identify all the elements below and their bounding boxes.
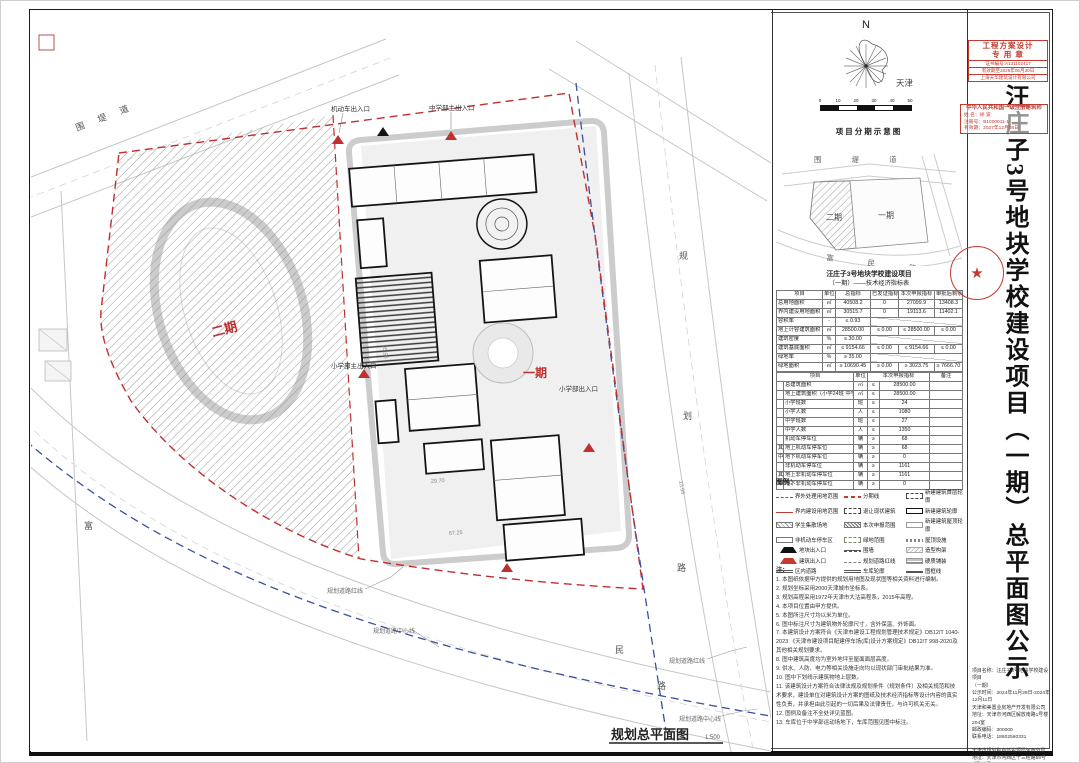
indicator2-cell: 27	[880, 417, 930, 426]
indicator2-row: 中学人数人≤1350	[777, 426, 963, 435]
legend-symbol-s-bold-box	[906, 508, 923, 514]
indicator2-cell: 中学人数	[784, 426, 854, 435]
scale-bar-cell	[857, 106, 875, 110]
road-label-guihua-2: 划	[683, 410, 692, 421]
dim-text-4: 35.50	[381, 345, 388, 359]
indicator-cell: 0	[871, 308, 899, 317]
indicator-section: 汪庄子3号地块学校建设项目 （一期）——技术经济指标表 项目单位总指标已发证指标…	[776, 270, 962, 490]
indicator2-cell: ㎡	[854, 390, 868, 399]
indicator2-header-cell: 单位	[854, 372, 868, 381]
scale-tick: 0	[819, 98, 822, 103]
indicator-cell: ≥ 3023.75	[899, 362, 935, 371]
info-line: 公示时间：2024年11月28日-2024年12月11日	[972, 690, 1052, 705]
city-label: 天津	[896, 78, 914, 88]
indicator2-cell	[930, 390, 963, 399]
indicator-cell: 总用地面积	[777, 299, 823, 308]
architect-stamp: 中华人民共和国一级注册建筑师 姓 名：徐 波 注册号：B1000011-1 有效…	[960, 104, 1048, 134]
indicator-header-cell: 已发证指标	[871, 290, 899, 299]
indicator2-header-cell: 备注	[930, 372, 963, 381]
indicator2-cell: 辆	[854, 453, 868, 462]
indicator2-cell: 中	[777, 453, 784, 462]
note-item: 9. 供水、人防、电力等相关设施走向均以现状部门审批结果为准。	[776, 665, 960, 674]
indicator2-cell: 68	[880, 435, 930, 444]
info-line: 地址：天津市河西区解放南路1号楼204室	[972, 712, 1052, 727]
legend-label: 新建建筑屋顶轮廓	[925, 517, 966, 533]
note-item: 3. 规划高程采用1972年天津市大沽高程系，2015年高程。	[776, 594, 960, 603]
dim-text-2: 67.25	[449, 530, 463, 537]
sheet-page: 机动车出入口 中学部主出入口 小学部主出入口 小学部出入口 29.70 67.2…	[0, 0, 1080, 763]
project-info-block: 项目名称：汪庄子3号地块学校建设项目（一期）公示时间：2024年11月28日-2…	[972, 668, 1052, 763]
note-item: 6. 图中标注尺寸为建筑物外轮廓尺寸，含外保温、外饰面。	[776, 621, 960, 630]
indicator2-cell: 人	[854, 426, 868, 435]
legend-label: 屋顶设施	[925, 536, 947, 544]
indicator2-cell: 68	[880, 444, 930, 453]
legend-item: 造型构架	[906, 546, 966, 554]
indicator2-cell: ≤	[868, 390, 880, 399]
indicator-cell: ㎡	[823, 362, 836, 371]
scale-bar-cell	[875, 106, 893, 110]
indicator-cell: 0	[871, 299, 899, 308]
indicator-cell: %	[823, 353, 836, 362]
indicator2-cell: 28500.00	[880, 390, 930, 399]
indicator2-cell	[930, 435, 963, 444]
indicator2-cell	[930, 381, 963, 390]
table-title: 汪庄子3号地块学校建设项目	[776, 270, 962, 280]
indicator2-row: 小学班数班≤24	[777, 399, 963, 408]
corner-mark	[39, 35, 54, 50]
legend-label: 分期线	[863, 492, 879, 500]
indicator2-cell: 中学班数	[784, 417, 854, 426]
indicator-cell: ≤ 0.00	[935, 344, 963, 353]
indicator-merged-cell	[871, 317, 963, 326]
indicator-cell: ㎡	[823, 308, 836, 317]
legend-symbol-s-dots	[906, 539, 923, 542]
indicator2-cell: 地上机动车停车位	[784, 444, 854, 453]
legend-symbol-s-box	[776, 537, 793, 543]
indicator2-cell: ≤	[868, 426, 880, 435]
indicator-cell: 13408.3	[935, 299, 963, 308]
note-item: 10. 图中下划线示建筑物地上层数。	[776, 674, 960, 683]
legend-item: 新建建筑屋顶轮廓	[906, 517, 966, 533]
building-gym-hall	[356, 273, 439, 367]
indicator-row: 总用地面积㎡40508.2027099.913408.3	[777, 299, 963, 308]
indicator2-cell: 小学人数	[784, 408, 854, 417]
indicator2-cell: ≥	[868, 462, 880, 471]
indicator2-cell: 班	[854, 399, 868, 408]
indicator-header-cell: 总指标	[836, 290, 871, 299]
indicator-cell: 11402.1	[935, 308, 963, 317]
legend-label: 退让现状建筑	[863, 507, 895, 515]
indicator2-header-cell: 本次申报指标	[868, 372, 930, 381]
note-item: 7. 本建筑设计方案符合《天津市建设工程规划管理技术规定》DB12/T 1040…	[776, 629, 960, 656]
legend-symbol-s-tri-r	[780, 558, 797, 564]
legend-symbol-s-red-dash	[776, 497, 793, 498]
indicator-cell: 界内建设用地面积	[777, 308, 823, 317]
indicator-row: 绿地面积㎡≥ 10690.45≥ 0.00≥ 3023.75≥ 7666.70	[777, 362, 963, 371]
phasing-road-top: 围 堤 道	[814, 154, 911, 164]
indicator-cell: ≤ 0.00	[871, 344, 899, 353]
table-subtitle: （一期）——技术经济指标表	[776, 280, 962, 289]
legend-label: 围墙	[863, 546, 874, 554]
indicator-cell: 地上计容建筑面积	[777, 326, 823, 335]
indicator2-cell	[930, 462, 963, 471]
indicator-cell: 建筑密度	[777, 335, 823, 344]
indicator-merged-cell	[871, 335, 963, 344]
indicator2-cell	[930, 444, 963, 453]
note-item: 8. 图中建筑高度均为室外地坪至屋面面层高度。	[776, 656, 960, 665]
indicator-cell: 建筑基底面积	[777, 344, 823, 353]
indicator-cell: ≥ 0.00	[871, 362, 899, 371]
legend-item: 新建建筑首层轮廓	[906, 488, 966, 504]
scale-bar-cell	[821, 106, 839, 110]
legend-symbol-s-red-seg	[844, 496, 861, 499]
notes-list: 1. 本图纸依据甲方提供的规划用地图及现状图等相关资料进行编制。2. 规划坐标采…	[776, 576, 960, 727]
indicator-row: 地上计容建筑面积㎡28500.00≤ 0.00≤ 28500.00≤ 0.00	[777, 326, 963, 335]
legend-label: 界内建设用地范围	[795, 507, 838, 515]
site-plan: 机动车出入口 中学部主出入口 小学部主出入口 小学部出入口 29.70 67.2…	[31, 11, 771, 752]
company-round-stamp: ★	[950, 246, 1004, 300]
indicator2-cell: 其	[777, 444, 784, 453]
north-label: N	[862, 19, 870, 31]
legend-label: 非机动车停车区	[795, 536, 833, 544]
road-label-fumin-3: 路	[657, 680, 666, 691]
note-item: 1. 本图纸依据甲方提供的规划用地图及现状图等相关资料进行编制。	[776, 576, 960, 585]
indicator2-cell: ≥	[868, 444, 880, 453]
stamp-star-icon: ★	[970, 266, 983, 281]
legend-item: 围墙	[844, 546, 904, 554]
indicator2-cell	[930, 417, 963, 426]
dim-text-1: 29.70	[431, 478, 445, 485]
indicator-header-cell: 本次申报指标	[899, 290, 935, 299]
indicator2-cell	[777, 435, 784, 444]
scale-bar-cell	[839, 106, 857, 110]
scale-bar-cell	[893, 106, 911, 110]
indicator2-cell: 人	[854, 408, 868, 417]
scale-tick: 10	[835, 98, 840, 103]
indicator2-cell	[777, 399, 784, 408]
legend-item: 非机动车停车区	[776, 536, 842, 544]
legend-item: 硬质铺装	[906, 557, 966, 565]
indicator2-cell: 机动车停车位	[784, 435, 854, 444]
architect-stamp-line2: 姓 名：徐 波	[961, 113, 1047, 120]
phasing-diagram: 二期 一期 围 堤 道 富 民 路	[774, 138, 964, 266]
building-south-wing	[503, 519, 584, 561]
indicator-cell: ≤ 0.93	[836, 317, 871, 326]
design-stamp-line1: 工程方案设计	[969, 41, 1047, 50]
indicator2-cell: 0	[880, 453, 930, 462]
building-small-mid	[375, 400, 398, 443]
legend-symbol-s-tri-k	[780, 547, 797, 553]
scale-tick: 50	[907, 98, 912, 103]
indicator-cell: -	[823, 317, 836, 326]
indicator2-cell: 小学班数	[784, 399, 854, 408]
info-line: 地址：天津市河西区十三经路59号	[972, 755, 1052, 762]
indicator2-row: 总建筑面积㎡≤28500.00	[777, 381, 963, 390]
scale-bar-cells	[820, 105, 912, 111]
scale-bar: 01020304050	[820, 98, 930, 110]
legend-symbol-s-hatch	[776, 522, 793, 528]
indicator-cell: ≤ 28500.00	[899, 326, 935, 335]
indicator2-cell: 24	[880, 399, 930, 408]
indicator2-cell: ≤	[868, 381, 880, 390]
entrance-label-vehicle: 机动车出入口	[331, 104, 370, 113]
legend-item: 界外处理用地范围	[776, 488, 842, 504]
legend-label: 硬质铺装	[925, 557, 947, 565]
legend-item: 新建建筑轮廓	[906, 507, 966, 515]
leader-label-bl2: 规划道路中心线	[373, 627, 415, 635]
indicator-row: 建筑密度%≤ 30.00	[777, 335, 963, 344]
legend-item: 界内建设用地范围	[776, 507, 842, 515]
indicator2-cell: 辆	[854, 435, 868, 444]
phase1-label: 一期	[523, 365, 547, 380]
indicator-row: 绿地率%≥ 35.00	[777, 353, 963, 362]
legend-section: 图例： 界外处理用地范围分期线新建建筑首层轮廓界内建设用地范围退让现状建筑新建建…	[776, 476, 964, 575]
indicator2-header-row: 项目单位本次申报指标备注	[777, 372, 963, 381]
indicator2-cell	[777, 417, 784, 426]
leader-label-br1: 规划道路红线	[669, 657, 705, 665]
indicator2-header-cell: 项目	[777, 372, 854, 381]
indicator2-cell: 非机动车停车位	[784, 462, 854, 471]
indicator2-cell	[777, 426, 784, 435]
indicator2-cell	[777, 462, 784, 471]
note-item: 4. 本项目位置由甲方提供。	[776, 603, 960, 612]
info-line: 项目名称：汪庄子3号地块学校建设项目	[972, 668, 1052, 683]
indicator-cell: ㎡	[823, 344, 836, 353]
sheet-vertical-title: 汪庄子3号地块学校建设项目（一期）总平面图公示	[1002, 84, 1026, 684]
legend-item: 屋顶设施	[906, 536, 966, 544]
legend-label: 本次申报范围	[863, 521, 895, 529]
indicator-row: 建筑基底面积㎡≤ 9154.66≤ 0.00≤ 9154.66≤ 0.00	[777, 344, 963, 353]
indicator2-cell	[777, 381, 784, 390]
indicator2-cell: 辆	[854, 462, 868, 471]
note-item: 5. 本图所注尺寸均以米为单位。	[776, 612, 960, 621]
scale-tick: 30	[871, 98, 876, 103]
indicator-cell: %	[823, 335, 836, 344]
divider-main-panel	[772, 10, 773, 751]
legend-item: 退让现状建筑	[844, 507, 904, 515]
indicator2-cell: 1161	[880, 462, 930, 471]
design-stamp-line5: 上海天华建筑设计有限公司	[969, 74, 1047, 81]
indicator2-cell	[930, 426, 963, 435]
legend-label: 建筑出入口	[799, 557, 826, 565]
indicator-cell: ≥ 7666.70	[935, 362, 963, 371]
indicator-cell: 27099.9	[899, 299, 935, 308]
legend-symbol-s-hatch2	[844, 522, 861, 528]
info-line: （一期）	[972, 683, 1052, 690]
legend-item: 分期线	[844, 488, 904, 504]
plan-caption-scale: 1:500	[705, 735, 721, 741]
indicator2-cell: ≤	[868, 417, 880, 426]
indicator-table-2: 项目单位本次申报指标备注总建筑面积㎡≤28500.00地上建筑面积（小学24班 …	[776, 372, 963, 490]
design-stamp-line4: 有效期至2029年06月30日	[969, 67, 1047, 74]
note-item: 12. 图例及备注不全处详见蓝图。	[776, 710, 960, 719]
indicator-row: 容积率-≤ 0.93	[777, 317, 963, 326]
legend-symbol-s-gray-dash	[844, 562, 861, 563]
indicator-cell: 40508.2	[836, 299, 871, 308]
indicator2-row: 中地下机动车停车位辆≥0	[777, 453, 963, 462]
info-line: 天津和美置业房地产开发有限公司	[972, 705, 1052, 712]
indicator2-cell: ≤	[868, 408, 880, 417]
legend-symbol-s-thin-box	[906, 522, 923, 528]
indicator-table-2-body: 项目单位本次申报指标备注总建筑面积㎡≤28500.00地上建筑面积（小学24班 …	[777, 372, 963, 489]
legend-label: 新建建筑轮廓	[925, 507, 957, 515]
indicator2-cell	[930, 408, 963, 417]
indicator-header-row: 项目单位总指标已发证指标本次申报指标审批后剩余指标	[777, 290, 963, 299]
phasing-phase1-label: 一期	[878, 211, 894, 220]
indicator-cell: ≤ 9154.66	[836, 344, 871, 353]
legend-symbol-s-dash-box	[844, 508, 861, 514]
entrance-label-primary-main: 小学部主出入口	[331, 361, 377, 370]
indicator-cell: 28500.00	[836, 326, 871, 335]
note-item: 11. 该建筑设计方案符合法律法规及规划条件（规划条件）及相关规范和技术要求，建…	[776, 683, 960, 710]
indicator-cell: ≥ 10690.45	[836, 362, 871, 371]
legend-title: 图例：	[776, 476, 964, 486]
entrance-label-primary-side: 小学部出入口	[559, 384, 598, 393]
legend-label: 绿地范围	[863, 536, 885, 544]
design-stamp-line2: 专 用 章	[969, 50, 1047, 59]
indicator2-row: 小学人数人≤1080	[777, 408, 963, 417]
indicator-cell: ㎡	[823, 326, 836, 335]
indicator-row: 界内建设用地面积㎡30515.7019113.611402.1	[777, 308, 963, 317]
indicator2-cell: ≥	[868, 453, 880, 462]
indicator-cell: ≤ 9154.66	[899, 344, 935, 353]
info-line: 天津市规划和自然资源局河西分局	[972, 748, 1052, 755]
legend-item: 规划道路红线	[844, 557, 904, 565]
indicator-cell: ≤ 30.00	[836, 335, 871, 344]
indicator2-row: 中学班数班≤27	[777, 417, 963, 426]
indicator-cell: 绿地率	[777, 353, 823, 362]
road-label-guihua-1: 规	[679, 251, 688, 261]
info-line: 联系电话：18602560331	[972, 734, 1052, 741]
building-annex	[424, 439, 484, 473]
note-item: 2. 规划坐标采用2000天津城市坐标系。	[776, 585, 960, 594]
notes-section: 注： 1. 本图纸依据甲方提供的规划用地图及现状图等相关资料进行编制。2. 规划…	[776, 566, 960, 727]
indicator2-cell: 地下机动车停车位	[784, 453, 854, 462]
legend-symbol-s-red-line	[776, 512, 793, 513]
architect-stamp-line4: 有效期：2027年12月08日	[961, 126, 1047, 133]
indicator-cell: ≥ 35.00	[836, 353, 871, 362]
legend-symbol-s-hlines	[906, 558, 923, 564]
phasing-title: 项目分期示意图	[774, 126, 964, 137]
indicator-table-1-body: 项目单位总指标已发证指标本次申报指标审批后剩余指标总用地面积㎡40508.202…	[777, 290, 963, 371]
indicator2-row: 机动车停车位辆≥68	[777, 435, 963, 444]
note-item: 13. 车库位于中学部运动场地下，车库范围见图中标注。	[776, 719, 960, 728]
legend-label: 学生集散场地	[795, 521, 827, 529]
building-small-west	[357, 218, 387, 268]
leader-label-br2: 规划道路中心线	[679, 715, 721, 723]
indicator-cell: 30515.7	[836, 308, 871, 317]
indicator-cell: 容积率	[777, 317, 823, 326]
indicator2-cell: 班	[854, 417, 868, 426]
indicator-cell: ㎡	[823, 299, 836, 308]
compass-rose-icon	[844, 40, 888, 88]
legend-symbol-s-wall	[844, 550, 861, 552]
indicator-cell: ≤ 0.00	[935, 326, 963, 335]
road-label-fumin-1: 富	[84, 520, 93, 531]
indicator2-row: 其地上机动车停车位辆≥68	[777, 444, 963, 453]
indicator2-row: 地上建筑面积（小学24班 中学27班）㎡≤28500.00	[777, 390, 963, 399]
legend-label: 新建建筑首层轮廓	[925, 488, 966, 504]
indicator2-cell: ≥	[868, 435, 880, 444]
legend-symbol-s-diag-lt	[906, 547, 923, 553]
legend-label: 地块出入口	[799, 546, 826, 554]
legend-item: 地块出入口	[776, 546, 842, 554]
legend-symbol-s-dash-box	[906, 493, 923, 499]
design-stamp: 工程方案设计 专 用 章 证书编号:A131102417 有效期至2029年06…	[968, 40, 1048, 82]
indicator2-cell: 1350	[880, 426, 930, 435]
indicator-cell: ≤ 0.00	[871, 326, 899, 335]
entrance-label-middle-main: 中学部主出入口	[429, 103, 475, 112]
plan-caption: 规划总平面图	[611, 727, 689, 742]
circular-plaza-inner	[488, 338, 518, 368]
indicator2-row: 非机动车停车位辆≥1161	[777, 462, 963, 471]
legend-label: 造型构架	[925, 546, 947, 554]
architect-stamp-line1: 中华人民共和国一级注册建筑师	[961, 105, 1047, 113]
indicator-header-cell: 单位	[823, 290, 836, 299]
indicator-table-1: 项目单位总指标已发证指标本次申报指标审批后剩余指标总用地面积㎡40508.202…	[776, 290, 963, 372]
legend-item: 建筑出入口	[776, 557, 842, 565]
indicator-cell: 19113.6	[899, 308, 935, 317]
sheet-frame: 机动车出入口 中学部主出入口 小学部主出入口 小学部出入口 29.70 67.2…	[29, 9, 1053, 756]
indicator2-cell	[930, 453, 963, 462]
legend-item: 绿地范围	[844, 536, 904, 544]
indicator2-cell	[777, 408, 784, 417]
indicator2-cell	[777, 390, 784, 399]
legend-label: 规划道路红线	[863, 557, 895, 565]
phasing-phase2-label: 二期	[826, 213, 842, 222]
legend-item: 学生集散场地	[776, 517, 842, 533]
scale-tick: 20	[853, 98, 858, 103]
legend-label: 界外处理用地范围	[795, 492, 838, 500]
indicator-header-cell: 项目	[777, 290, 823, 299]
info-line: 邮政编码：300000	[972, 727, 1052, 734]
indicator2-cell: 1080	[880, 408, 930, 417]
legend-grid: 界外处理用地范围分期线新建建筑首层轮廓界内建设用地范围退让现状建筑新建建筑轮廓学…	[776, 488, 964, 575]
indicator2-cell: ㎡	[854, 381, 868, 390]
leader-label-bl1: 规划道路红线	[327, 587, 363, 595]
indicator2-cell: 总建筑面积	[784, 381, 854, 390]
indicator-merged-cell	[871, 353, 963, 362]
indicator2-cell: 地上建筑面积（小学24班 中学27班）	[784, 390, 854, 399]
indicator2-cell: 28500.00	[880, 381, 930, 390]
legend-symbol-s-green-dash	[844, 537, 861, 543]
indicator2-cell: 辆	[854, 444, 868, 453]
road-label-fumin-2: 民	[615, 645, 624, 655]
indicator2-cell	[930, 399, 963, 408]
design-stamp-line3: 证书编号:A131102417	[969, 60, 1047, 67]
road-label-guihua-3: 路	[677, 562, 686, 573]
scale-tick: 40	[889, 98, 894, 103]
legend-item: 本次申报范围	[844, 517, 904, 533]
indicator-cell: 绿地面积	[777, 362, 823, 371]
indicator2-cell: ≤	[868, 399, 880, 408]
notes-title: 注：	[776, 566, 960, 576]
